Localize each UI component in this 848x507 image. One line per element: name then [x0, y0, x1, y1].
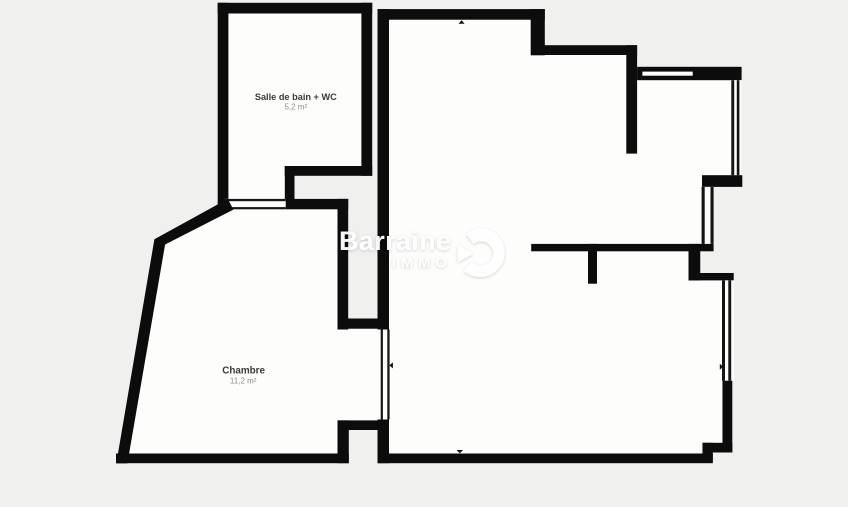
- svg-text:IMMO: IMMO: [392, 256, 452, 272]
- svg-text:Barraine: Barraine: [339, 226, 451, 256]
- svg-text:Chambre: Chambre: [222, 366, 265, 377]
- svg-text:11,2 m²: 11,2 m²: [230, 376, 257, 385]
- svg-text:5,2 m²: 5,2 m²: [284, 103, 307, 112]
- svg-text:Salle de bain + WC: Salle de bain + WC: [255, 92, 337, 102]
